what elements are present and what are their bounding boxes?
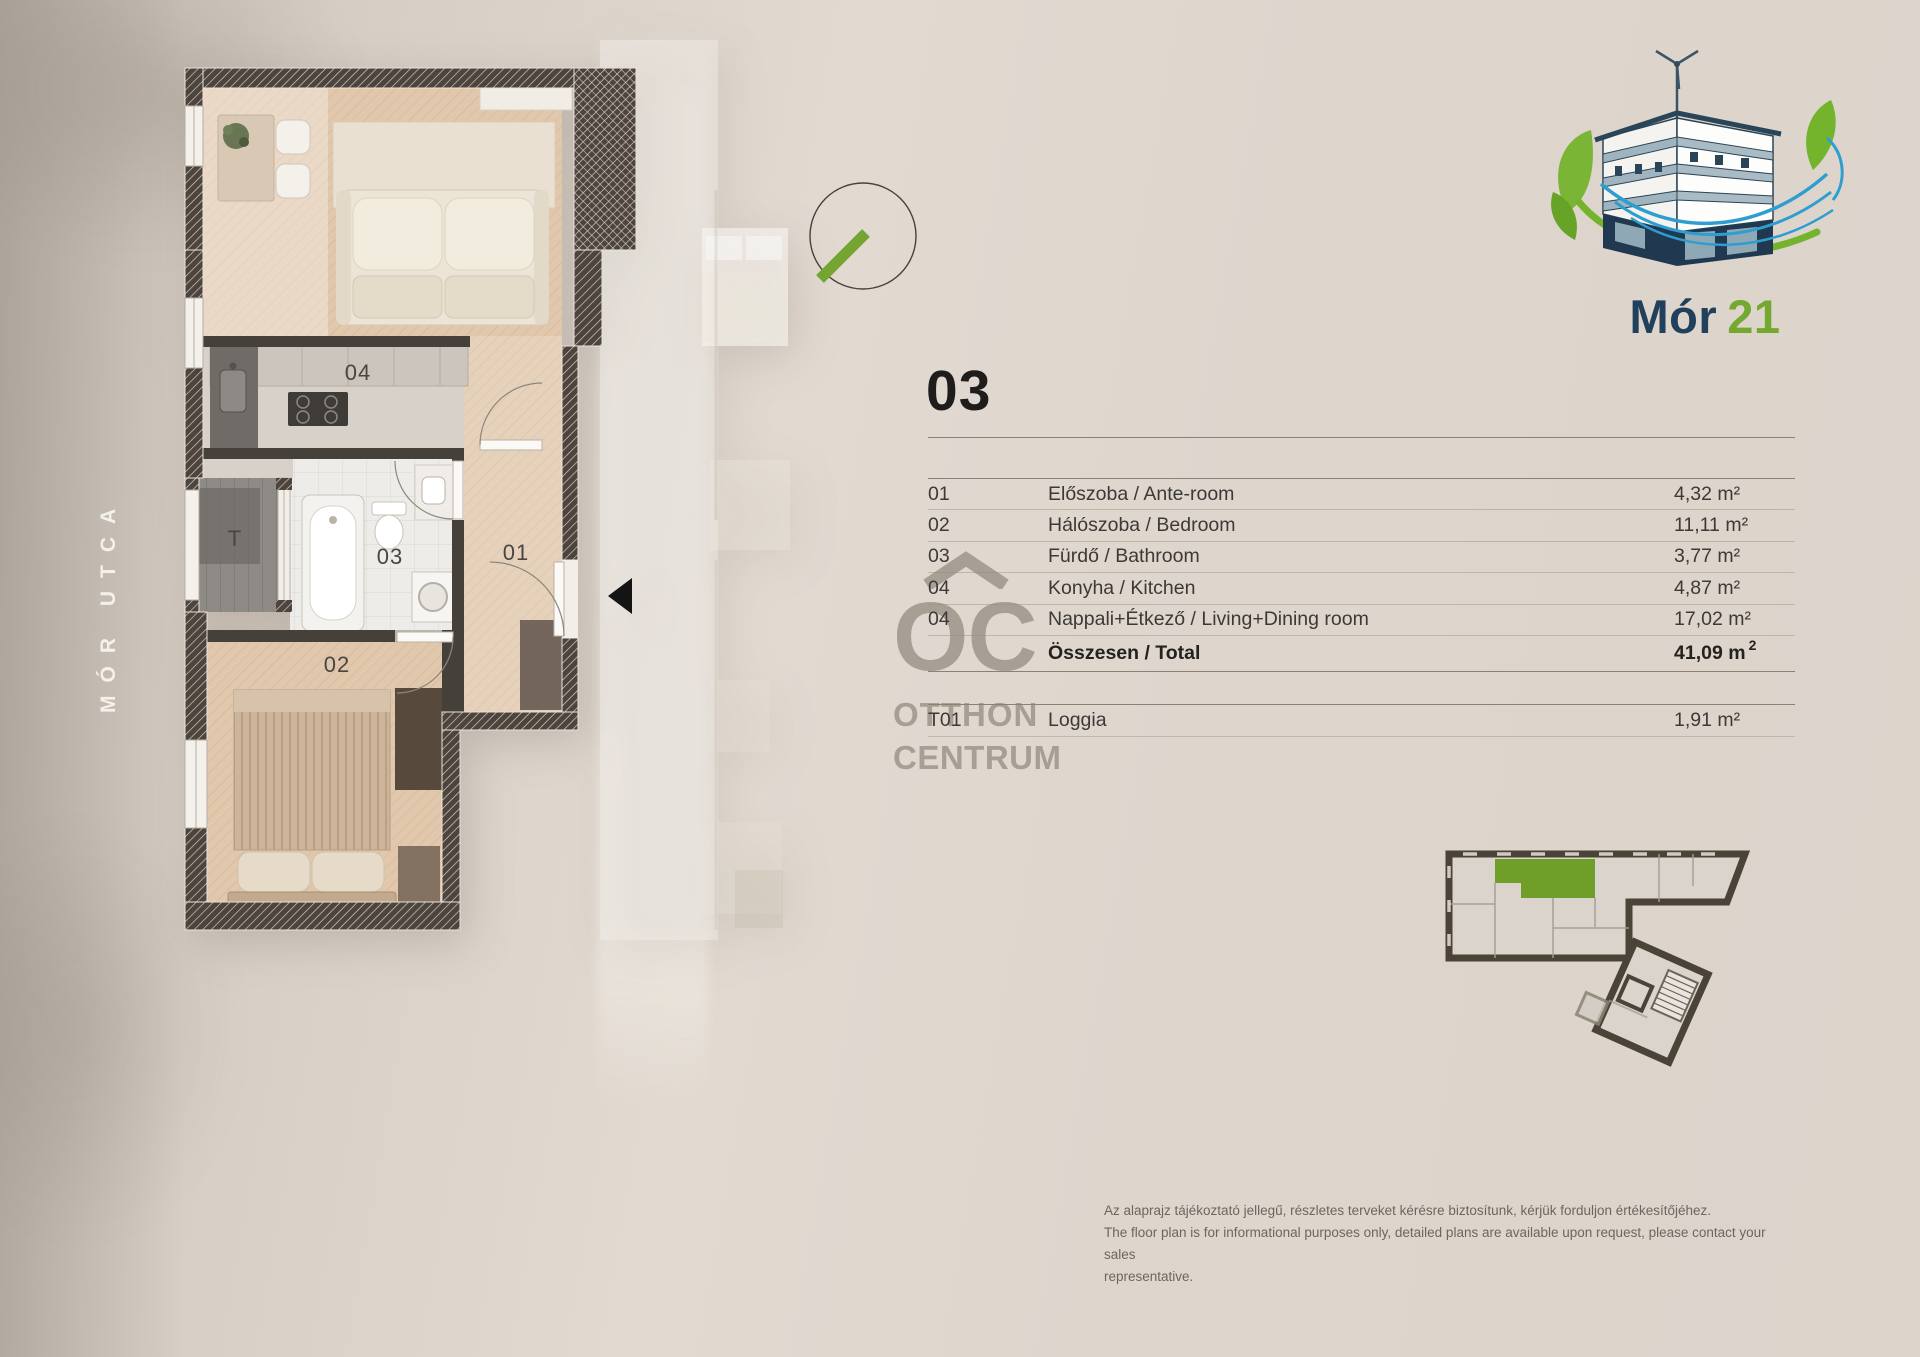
room-name: Nappali+Étkező / Living+Dining room (1048, 608, 1674, 631)
room-name: Fürdő / Bathroom (1048, 545, 1674, 568)
street-label: MÓR UTCA (97, 496, 121, 713)
sink (220, 370, 246, 412)
pillow (312, 852, 384, 892)
room-area: 11,11 m² (1674, 514, 1795, 537)
disclaimer-line-hu: Az alaprajz tájékoztató jellegű, részlet… (1104, 1200, 1784, 1222)
room-area: 3,77 m² (1674, 545, 1795, 568)
washing-machine (412, 572, 454, 622)
plan-label-hall: 01 (503, 540, 529, 565)
brand-logo-block: Mór21 (1545, 42, 1865, 344)
table-row: 04 Nappali+Étkező / Living+Dining room 1… (928, 605, 1795, 636)
room-area: 4,32 m² (1674, 483, 1795, 506)
table-extra-row: T01 Loggia 1,91 m² (928, 705, 1795, 737)
brand-name: Mór21 (1545, 289, 1865, 344)
wardrobe (395, 688, 442, 790)
room-name: Konyha / Kitchen (1048, 577, 1674, 600)
room-table: 01 Előszoba / Ante-room 4,32 m² 02 Hálós… (928, 479, 1795, 737)
room-area: 4,87 m² (1674, 577, 1795, 600)
room-number: 04 (928, 608, 1048, 631)
total-sup: 2 (1749, 637, 1757, 653)
room-number: T01 (928, 709, 1048, 732)
building-logo-icon (1545, 42, 1865, 282)
hob (288, 392, 348, 426)
plan-label-bathroom: 03 (377, 544, 403, 569)
washbasin (415, 465, 453, 520)
room-area: 1,91 m² (1674, 709, 1795, 732)
bedroom-door (397, 632, 453, 642)
plan-label-loggia: T (228, 526, 242, 551)
room-area: 17,02 m² (1674, 608, 1795, 631)
brand-number: 21 (1727, 290, 1780, 343)
compass-icon (795, 170, 931, 306)
total-area: 41,09 m2 (1674, 642, 1795, 665)
room-name: Loggia (1048, 709, 1674, 732)
dresser (398, 846, 440, 902)
room-number: 02 (928, 514, 1048, 537)
table-row: 04 Konyha / Kitchen 4,87 m² (928, 573, 1795, 604)
room-number: 03 (928, 545, 1048, 568)
table-row: 02 Hálószoba / Bedroom 11,11 m² (928, 510, 1795, 541)
bathroom-door (453, 461, 463, 519)
wind-turbine-icon (1656, 51, 1698, 118)
room-name: Előszoba / Ante-room (1048, 483, 1674, 506)
unit-title: 03 (926, 358, 991, 424)
toilet (372, 502, 406, 549)
table-row: 03 Fürdő / Bathroom 3,77 m² (928, 542, 1795, 573)
header-rule-top (928, 437, 1795, 438)
sofa (336, 190, 549, 325)
total-label: Összesen / Total (1048, 642, 1674, 665)
plan-label-kitchen: 04 (345, 360, 371, 385)
loggia-window (276, 478, 292, 612)
building-site-plan (1443, 846, 1773, 1068)
closet (480, 88, 572, 110)
bathtub (302, 495, 364, 631)
kitchen-door (480, 440, 542, 450)
leaf-icon (1806, 100, 1836, 170)
page: { "street": { "label": "MÓR UTCA" }, "br… (0, 0, 1920, 1357)
entrance-door (554, 562, 564, 636)
chair (276, 164, 310, 198)
total-value: 41,09 m (1674, 642, 1746, 664)
floor-plan: 04 03 01 02 T (150, 40, 800, 940)
plan-label-bedroom: 02 (324, 652, 350, 677)
disclaimer: Az alaprajz tájékoztató jellegű, részlet… (1104, 1200, 1784, 1287)
disclaimer-line-en: The floor plan is for informational purp… (1104, 1222, 1784, 1266)
bed (228, 690, 396, 914)
room-name: Hálószoba / Bedroom (1048, 514, 1674, 537)
room-number: 04 (928, 577, 1048, 600)
table-total-row: Összesen / Total 41,09 m2 (928, 636, 1795, 672)
room-number: 01 (928, 483, 1048, 506)
table-spacer (928, 672, 1795, 705)
watermark-centrum: CENTRUM (893, 739, 1039, 777)
disclaimer-line-en2: representative. (1104, 1266, 1784, 1288)
brand-name-text: Mór (1630, 290, 1718, 343)
table-row: 01 Előszoba / Ante-room 4,32 m² (928, 479, 1795, 510)
pillow (238, 852, 310, 892)
chair (276, 120, 310, 154)
